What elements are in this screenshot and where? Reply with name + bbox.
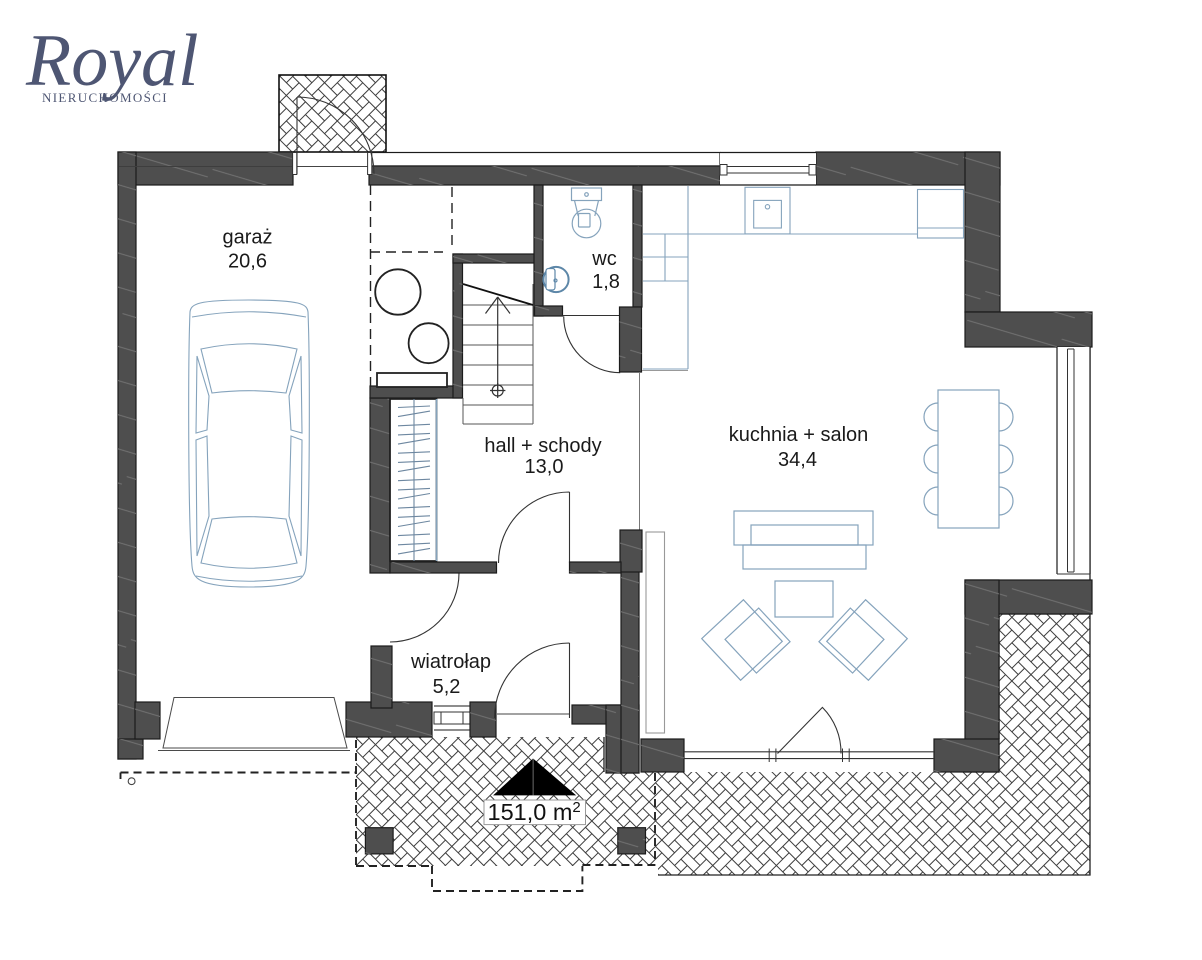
- svg-text:garaż: garaż: [222, 227, 272, 249]
- svg-text:kuchnia + salon: kuchnia + salon: [729, 424, 869, 446]
- svg-text:13,0: 13,0: [525, 456, 564, 478]
- svg-text:151,0 m2: 151,0 m2: [488, 799, 581, 825]
- svg-text:wc: wc: [591, 248, 616, 270]
- svg-text:34,4: 34,4: [778, 449, 817, 471]
- svg-text:5,2: 5,2: [433, 676, 461, 698]
- svg-text:hall + schody: hall + schody: [484, 435, 601, 457]
- svg-text:1,8: 1,8: [592, 271, 620, 293]
- svg-text:wiatrołap: wiatrołap: [410, 651, 491, 673]
- svg-text:20,6: 20,6: [228, 251, 267, 273]
